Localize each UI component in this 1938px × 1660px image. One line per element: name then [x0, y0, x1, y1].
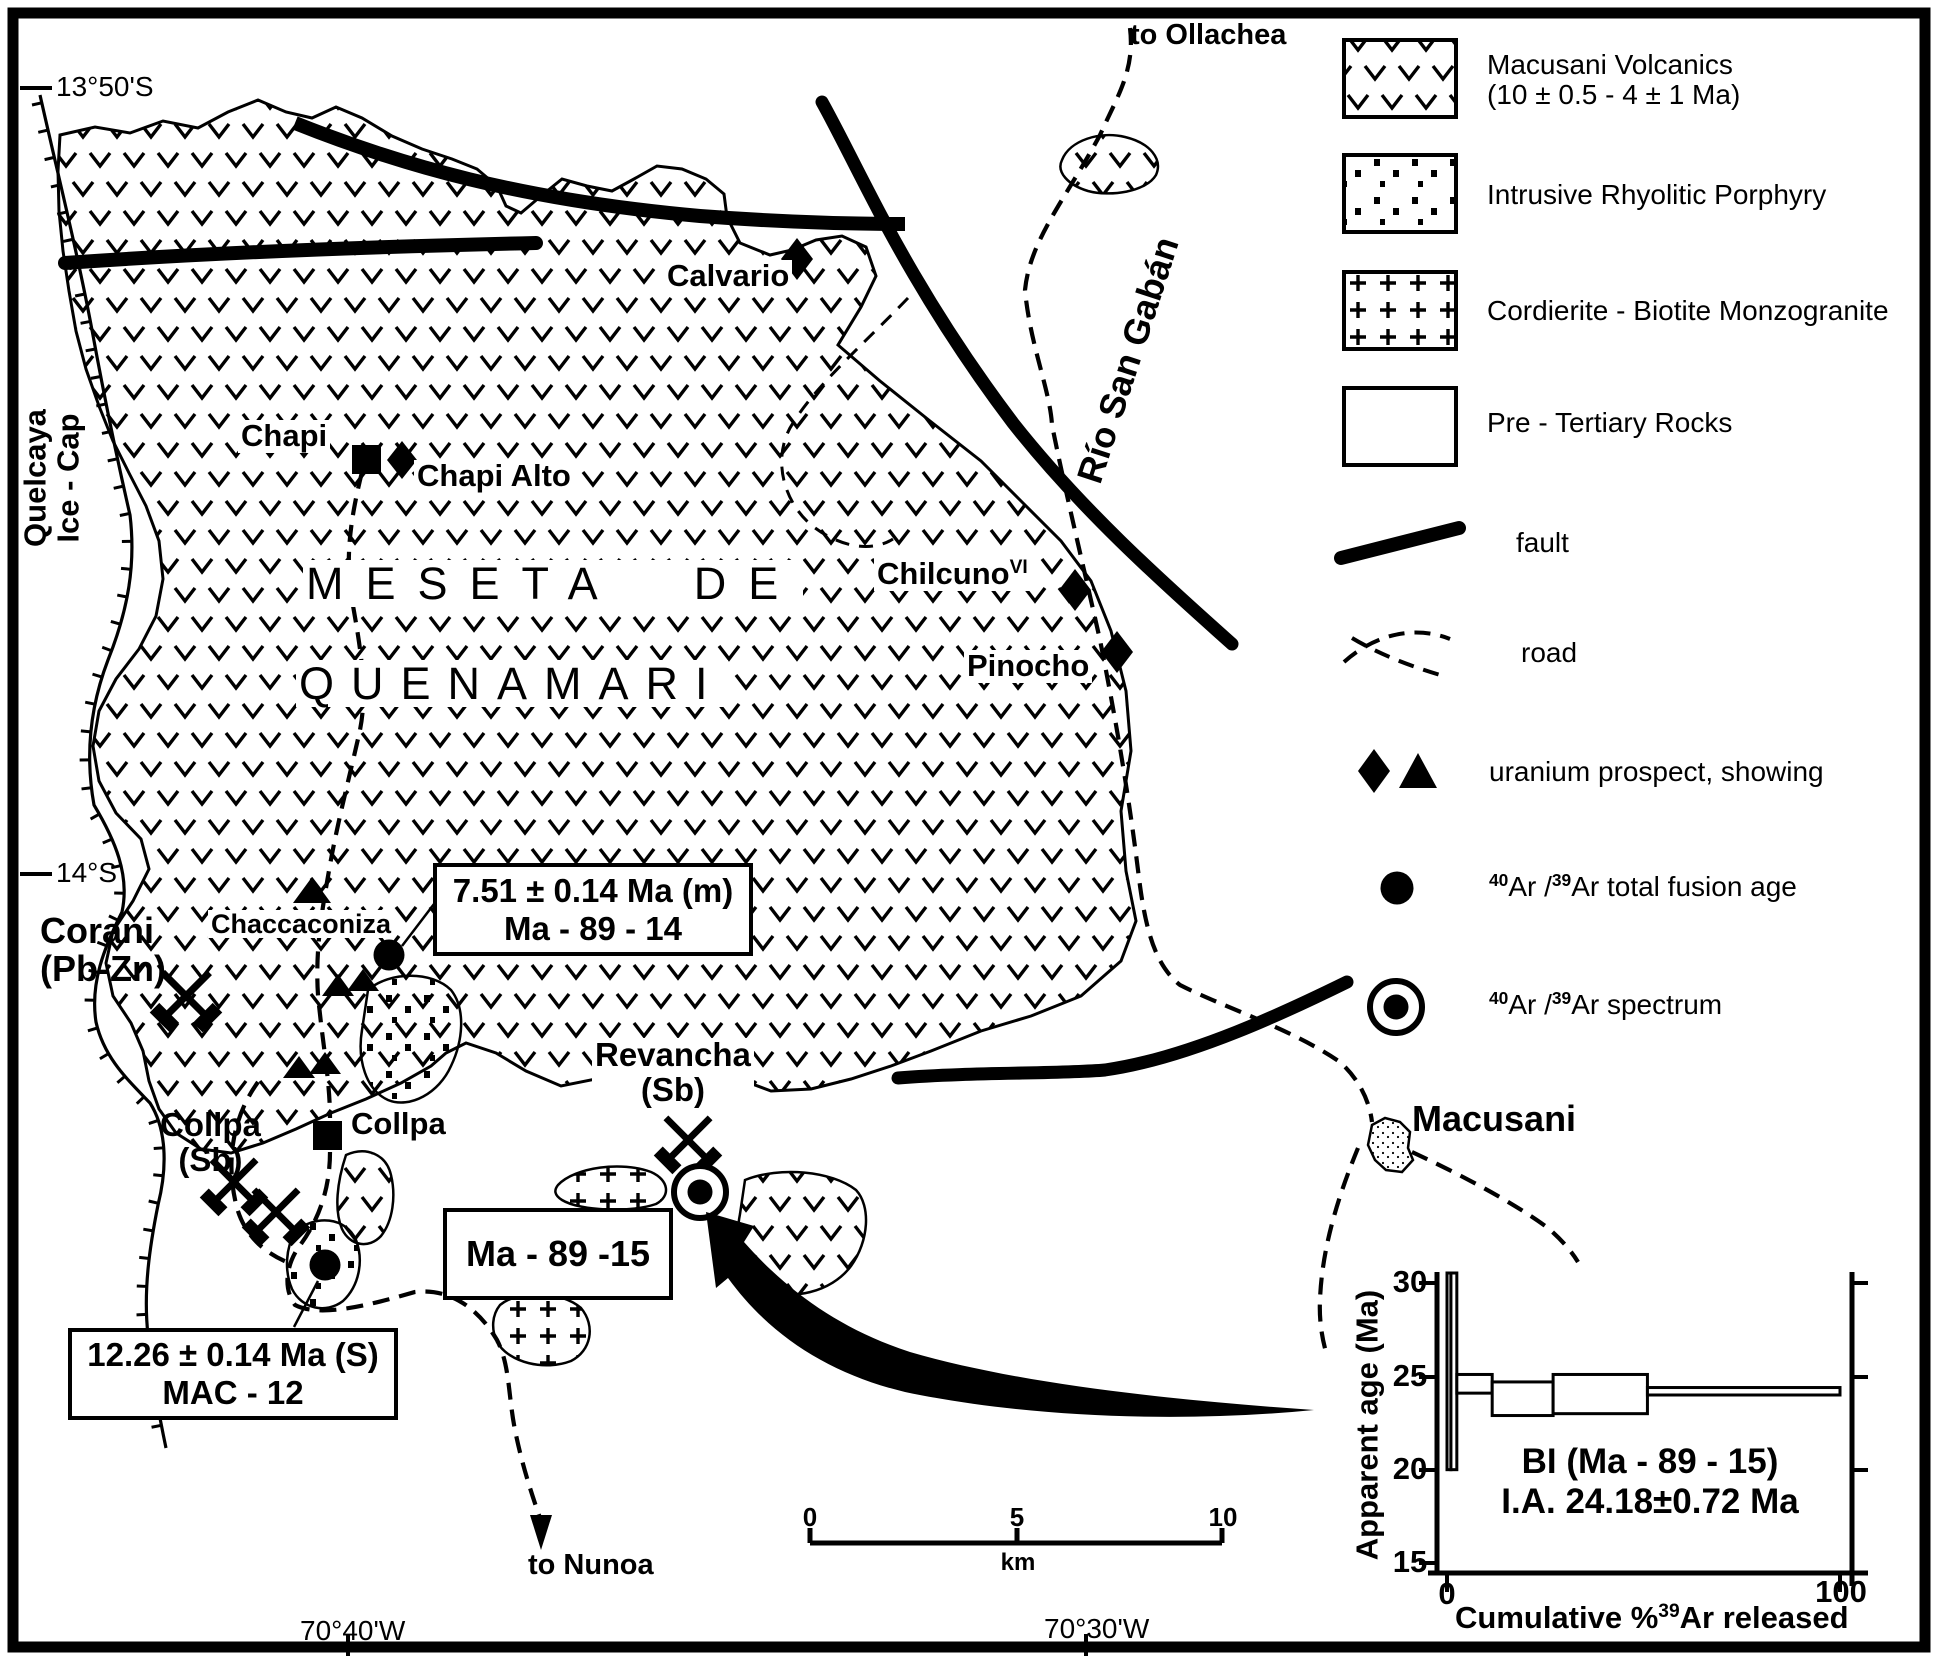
legend-swatch-pre-tertiary — [1344, 388, 1456, 465]
legend-fault-label: fault — [1516, 528, 1569, 557]
ice-hachure-tick — [81, 321, 91, 323]
chart-xlabel-sup: 39 — [1658, 1601, 1679, 1622]
ice-hachure-tick — [102, 647, 111, 651]
place-chapi: Chapi — [238, 420, 330, 453]
ice-hachure-tick — [63, 239, 73, 241]
lat-label-top: 13°50'S — [56, 72, 154, 101]
ice-hachure-tick — [117, 1076, 125, 1083]
place-chilcuno-sup: VI — [1010, 557, 1028, 578]
age-box-ma8914: 7.51 ± 0.14 Ma (m) Ma - 89 - 14 — [433, 863, 753, 956]
place-macusani: Macusani — [1412, 1100, 1576, 1138]
ice-hachure-tick — [81, 731, 91, 732]
chart-xlabel-pre: Cumulative % — [1455, 1600, 1658, 1635]
age-box-mac12: 12.26 ± 0.14 Ma (S) MAC - 12 — [68, 1328, 398, 1420]
legend-total-fusion-sup40: 40 — [1489, 870, 1508, 890]
lon-label-right: 70°30'W — [1044, 1614, 1149, 1643]
ice-hachure-tick — [102, 431, 112, 433]
chart-annotation-line2: I.A. 24.18±0.72 Ma — [1470, 1484, 1830, 1521]
legend-total-fusion-rest: Ar total fusion age — [1571, 871, 1797, 902]
ice-hachure-tick — [82, 788, 92, 789]
ice-hachure-tick — [91, 376, 101, 378]
geologic-map-figure: 13°50'S 14°S 70°40'W 70°30'W Quelcaya Ic… — [0, 0, 1938, 1660]
ice-cap-label-line2: Ice - Cap — [52, 409, 85, 547]
porphyry-chaccaconiza — [361, 976, 462, 1103]
place-revancha-line1: Revancha — [592, 1038, 754, 1073]
chart-xlabel: Cumulative %39Ar released — [1455, 1602, 1849, 1635]
place-chaccaconiza: Chaccaconiza — [208, 910, 394, 938]
ice-hachure-tick — [111, 621, 121, 624]
to-nunoa-arrowhead — [530, 1515, 552, 1550]
scale-label-5: 5 — [1005, 1504, 1029, 1531]
legend-volcanics-label-line2: (10 ± 0.5 - 4 ± 1 Ma) — [1487, 80, 1740, 109]
scale-label-0: 0 — [798, 1504, 822, 1531]
place-corani: Corani (Pb-Zn) — [40, 912, 166, 988]
age-box-mac12-line2: MAC - 12 — [72, 1374, 394, 1412]
legend-road-label: road — [1521, 638, 1577, 667]
spectrum-step — [1492, 1382, 1553, 1416]
ice-hachure-tick — [45, 157, 55, 159]
ice-hachure-tick — [75, 294, 85, 296]
legend-volcanics-label-line1: Macusani Volcanics — [1487, 50, 1733, 79]
legend-spectrum-mid: Ar / — [1508, 989, 1552, 1020]
spectrum-step — [1457, 1374, 1492, 1393]
place-collpa-mine: Collpa (Sb) — [160, 1108, 261, 1177]
place-pinocho: Pinocho — [964, 650, 1092, 683]
ice-hachure-tick — [120, 513, 130, 515]
legend-uranium-diamond — [1358, 749, 1390, 793]
spectrum-step — [1647, 1388, 1840, 1395]
legend-uranium-label: uranium prospect, showing — [1489, 757, 1824, 786]
plateau-title-line2: QUENAMARI — [296, 660, 728, 707]
legend-spectrum-sup40: 40 — [1489, 988, 1508, 1008]
ice-hachure-tick — [92, 674, 102, 677]
ice-hachure-tick — [38, 130, 48, 132]
ice-cap-label: Quelcaya Ice - Cap — [19, 409, 84, 547]
spectrum-step — [1451, 1273, 1457, 1470]
age-box-ma8915: Ma - 89 -15 — [443, 1208, 673, 1300]
ice-hachure-tick — [152, 1425, 162, 1427]
total-fusion-circle-chaccaconiza — [374, 940, 405, 971]
spectrum-step — [1553, 1374, 1647, 1413]
ice-hachure-tick — [96, 404, 106, 406]
town-square-chapi — [352, 445, 381, 474]
age-box-ma8914-line2: Ma - 89 - 14 — [437, 910, 749, 948]
legend-road-symbol — [1344, 633, 1450, 677]
legend-swatches — [1341, 40, 1459, 1033]
age-box-mac12-line1: 12.26 ± 0.14 Ma (S) — [72, 1336, 394, 1374]
legend-total-fusion-circle — [1381, 872, 1414, 905]
legend-fault-symbol — [1341, 528, 1459, 558]
legend-pre-tertiary-label: Pre - Tertiary Rocks — [1487, 408, 1732, 437]
plateau-title-line1: MESETA DE — [303, 560, 803, 607]
legend-total-fusion-label: 40Ar /39Ar total fusion age — [1489, 872, 1797, 901]
place-revancha-line2: (Sb) — [592, 1073, 754, 1108]
legend-porphyry-label: Intrusive Rhyolitic Porphyry — [1487, 180, 1826, 209]
ice-hachure-tick — [100, 1054, 109, 1059]
chart-ytick-25: 25 — [1390, 1360, 1430, 1393]
volcanics-island-ne — [1060, 135, 1157, 193]
spectrum-steps — [1447, 1273, 1840, 1470]
monzogranite-south — [493, 1294, 590, 1365]
lat-label-mid: 14°S — [56, 858, 117, 887]
ice-hachure-tick — [32, 103, 42, 105]
ice-cap-label-line1: Quelcaya — [19, 409, 52, 547]
scale-label-10: 10 — [1203, 1504, 1243, 1531]
legend-spectrum-sup39: 39 — [1552, 988, 1571, 1008]
place-collpa-mine-line2: (Sb) — [160, 1143, 261, 1178]
legend-swatch-monzogranite — [1344, 272, 1456, 349]
ice-hachure-tick — [91, 814, 100, 819]
place-chilcuno: ChilcunoVI — [874, 558, 1031, 591]
place-collpa: Collpa — [348, 1108, 449, 1141]
chart-ylabel: Apparent age (Ma) — [1352, 1290, 1385, 1560]
town-square-collpa — [313, 1121, 342, 1150]
macusani-town-outline — [1368, 1118, 1413, 1172]
ice-hachure-tick — [121, 568, 131, 569]
legend-uranium-triangle — [1399, 753, 1437, 788]
place-corani-line2: (Pb-Zn) — [40, 950, 166, 988]
spectrum-symbol-revancha — [674, 1166, 726, 1218]
legend-monzogranite-label: Cordierite - Biotite Monzogranite — [1487, 296, 1889, 325]
monzogranite-north — [555, 1166, 666, 1209]
chart-ytick-15: 15 — [1390, 1546, 1430, 1579]
chart-annotation-line1: BI (Ma - 89 - 15) — [1470, 1444, 1830, 1481]
chart-ytick-30: 30 — [1390, 1266, 1430, 1299]
legend-spectrum-rest: Ar spectrum — [1571, 989, 1722, 1020]
chart-xlabel-post: Ar released — [1680, 1600, 1849, 1635]
ice-hachure-tick — [137, 1097, 144, 1104]
place-corani-line1: Corani — [40, 912, 166, 950]
chart-ytick-20: 20 — [1390, 1453, 1430, 1486]
ice-hachure-tick — [149, 1201, 159, 1203]
age-box-ma8914-line1: 7.51 ± 0.14 Ma (m) — [437, 872, 749, 910]
route-south-label: to Nunoa — [528, 1550, 654, 1580]
ice-hachure-tick — [143, 1229, 153, 1231]
total-fusion-circle-mac12 — [310, 1250, 341, 1281]
ice-hachure-tick — [114, 486, 124, 488]
ice-hachure-tick — [103, 839, 112, 843]
place-calvario: Calvario — [664, 260, 792, 293]
legend-swatch-porphyry — [1344, 155, 1456, 232]
legend-spectrum-symbol — [1370, 981, 1422, 1033]
place-collpa-mine-line1: Collpa — [160, 1108, 261, 1143]
place-chilcuno-base: Chilcuno — [877, 556, 1010, 591]
route-north-label: to Ollachea — [1130, 20, 1286, 50]
mine-symbol-revancha — [658, 1118, 718, 1170]
ice-hachure-tick — [86, 349, 96, 351]
age-box-ma8915-line1: Ma - 89 -15 — [447, 1233, 669, 1275]
road-east-of-macusani — [1412, 1152, 1578, 1262]
ice-hachure-tick — [108, 459, 118, 461]
legend-total-fusion-mid: Ar / — [1508, 871, 1552, 902]
ice-hachure-tick — [117, 595, 127, 597]
inset-chart — [1419, 1272, 1868, 1592]
legend-spectrum-label: 40Ar /39Ar spectrum — [1489, 990, 1722, 1019]
ice-hachure-tick — [85, 702, 95, 704]
lon-label-left: 70°40'W — [300, 1616, 405, 1645]
ice-hachure-tick — [149, 1120, 158, 1123]
ice-hachure-tick — [139, 1257, 149, 1258]
place-chapi-alto: Chapi Alto — [414, 460, 574, 493]
place-revancha: Revancha (Sb) — [592, 1038, 754, 1107]
ice-hachure-tick — [88, 1028, 98, 1031]
chart-ticks — [1419, 1283, 1868, 1592]
legend-total-fusion-sup39: 39 — [1552, 870, 1571, 890]
legend-swatch-volcanics — [1344, 40, 1456, 117]
scale-label-km: km — [998, 1550, 1038, 1575]
